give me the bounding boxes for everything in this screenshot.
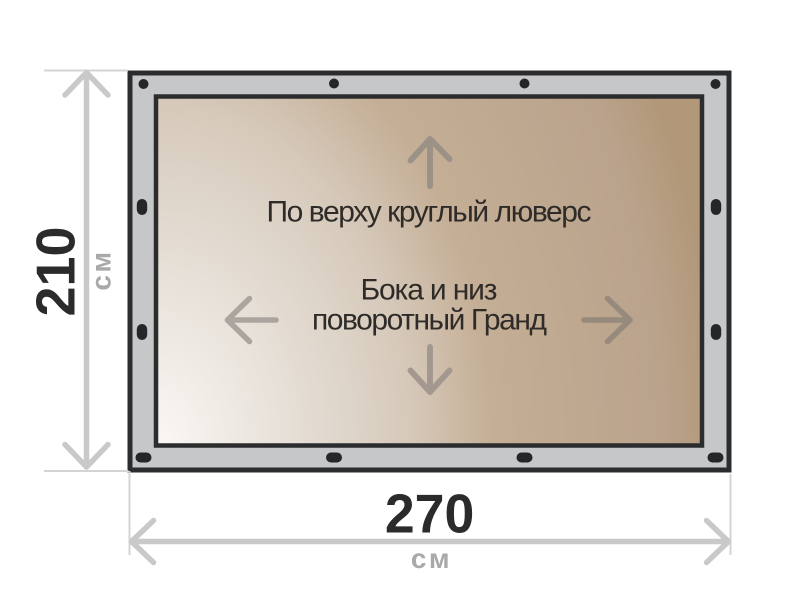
svg-text:см: см xyxy=(411,543,452,574)
svg-text:210: 210 xyxy=(25,227,87,317)
svg-text:поворотный Гранд: поворотный Гранд xyxy=(312,304,547,337)
svg-text:270: 270 xyxy=(385,483,475,545)
svg-text:см: см xyxy=(86,249,117,290)
svg-text:По верху круглый люверс: По верху круглый люверс xyxy=(267,196,592,229)
svg-text:Бока и низ: Бока и низ xyxy=(361,274,498,307)
